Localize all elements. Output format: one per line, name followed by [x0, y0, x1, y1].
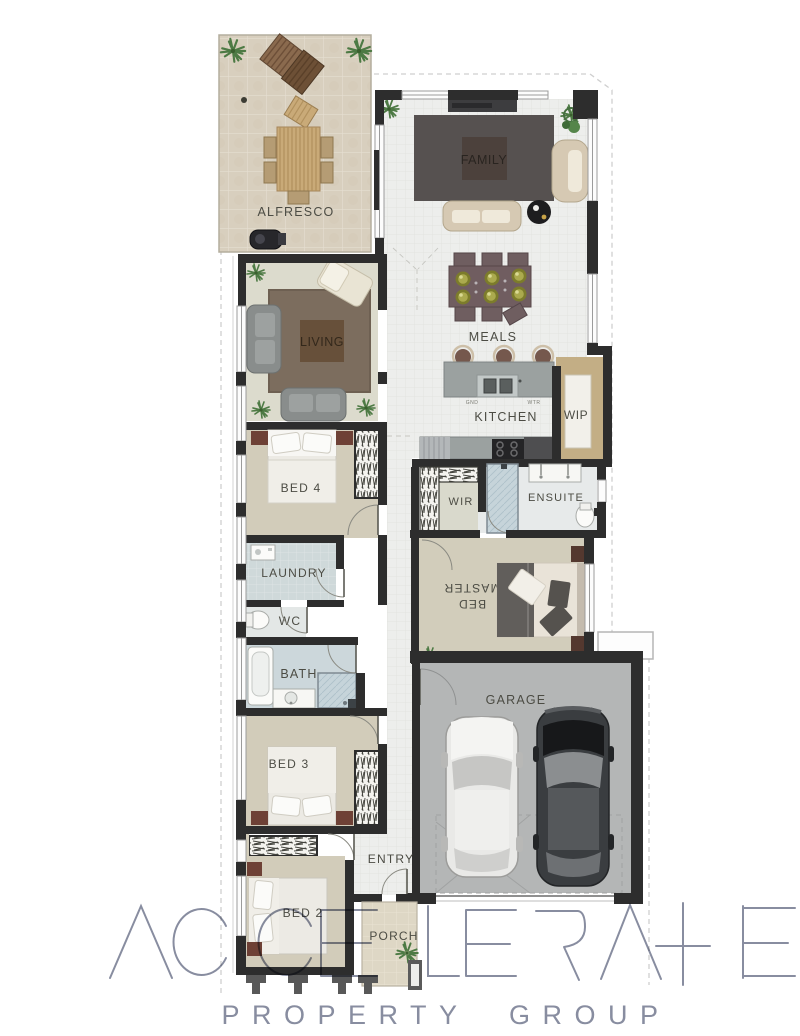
svg-text:MASTER: MASTER	[443, 581, 500, 595]
svg-text:WIP: WIP	[564, 408, 588, 422]
svg-text:ENTRY: ENTRY	[368, 852, 414, 866]
svg-text:ENSUITE: ENSUITE	[528, 492, 584, 504]
svg-text:BATH: BATH	[280, 667, 317, 681]
svg-text:LIVING: LIVING	[300, 335, 344, 349]
svg-text:MEALS: MEALS	[469, 330, 517, 344]
svg-text:GND: GND	[466, 400, 479, 406]
svg-text:BED 4: BED 4	[281, 481, 322, 495]
svg-text:PORCH: PORCH	[369, 929, 418, 943]
svg-text:FAMILY: FAMILY	[461, 153, 508, 167]
svg-text:WTR: WTR	[528, 400, 541, 406]
svg-text:BED: BED	[458, 597, 486, 611]
svg-text:GARAGE: GARAGE	[486, 693, 547, 707]
svg-text:KITCHEN: KITCHEN	[474, 410, 537, 424]
svg-text:WIR: WIR	[449, 496, 474, 508]
svg-text:PROPERTY GROUP: PROPERTY GROUP	[221, 1000, 670, 1030]
svg-text:ALFRESCO: ALFRESCO	[258, 205, 335, 219]
svg-text:BED 3: BED 3	[269, 757, 310, 771]
